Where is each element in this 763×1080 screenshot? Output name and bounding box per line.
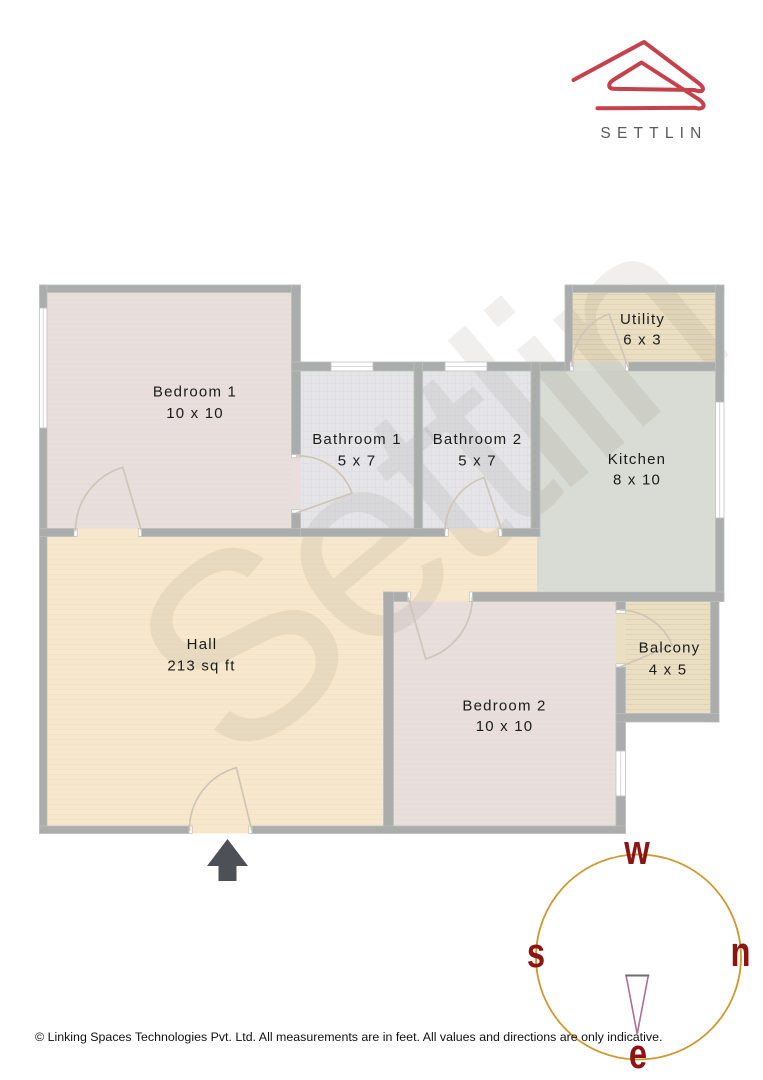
svg-text:5 x 7: 5 x 7: [338, 453, 377, 470]
svg-text:Kitchen: Kitchen: [608, 451, 666, 468]
svg-text:Bedroom 2: Bedroom 2: [462, 698, 546, 715]
svg-text:5 x 7: 5 x 7: [458, 453, 497, 470]
svg-text:10 x 10: 10 x 10: [476, 718, 534, 735]
svg-text:213 sq ft: 213 sq ft: [167, 658, 235, 675]
svg-text:w: w: [623, 826, 650, 873]
svg-text:© Linking Spaces Technologies: © Linking Spaces Technologies Pvt. Ltd. …: [35, 1030, 662, 1044]
svg-text:Bathroom 1: Bathroom 1: [312, 431, 402, 448]
svg-text:Bedroom 1: Bedroom 1: [153, 384, 237, 401]
svg-text:s: s: [527, 929, 545, 976]
svg-text:8 x 10: 8 x 10: [613, 472, 661, 489]
svg-text:4 x 5: 4 x 5: [649, 662, 688, 679]
svg-text:SETTLIN: SETTLIN: [600, 125, 707, 142]
svg-text:Balcony: Balcony: [639, 640, 701, 657]
svg-text:10 x 10: 10 x 10: [166, 405, 224, 422]
svg-text:Hall: Hall: [187, 636, 218, 653]
svg-text:Bathroom 2: Bathroom 2: [433, 431, 523, 448]
svg-text:Utility: Utility: [620, 311, 665, 328]
svg-text:6 x 3: 6 x 3: [623, 332, 662, 349]
svg-text:n: n: [730, 928, 750, 975]
